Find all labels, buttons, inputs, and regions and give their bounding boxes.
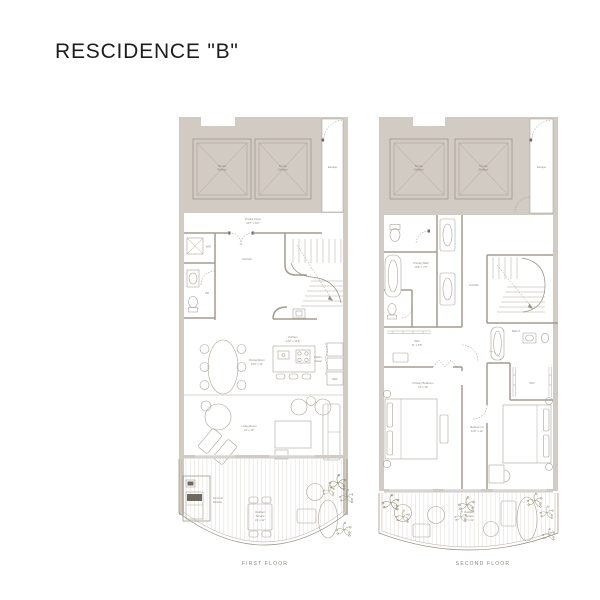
pouf (307, 484, 324, 501)
second-floor-caption: SECOND FLOOR (456, 561, 510, 567)
staircase (291, 239, 343, 318)
wc-room-2 (388, 304, 413, 320)
pantry-cabinets: Pantry Closet REF (314, 343, 343, 385)
svg-text:Living Room: Living Room (242, 424, 258, 428)
bench (440, 415, 448, 443)
svg-text:11'6" x 21': 11'6" x 21' (251, 362, 264, 366)
svg-text:Closet: Closet (314, 359, 322, 363)
living-room: Living Room 21' x 15' (184, 395, 343, 465)
floorplan-page: RESCIDENCE "B" Private Elevator (0, 0, 600, 600)
lounge-chair (297, 509, 316, 523)
svg-text:Escape: Escape (537, 165, 546, 169)
svg-text:Primary Bedroom: Primary Bedroom (413, 381, 435, 385)
svg-text:21' x 12': 21' x 12' (255, 518, 265, 522)
floorplan-first-floor: Private Elevator Private Elevator Escape… (177, 105, 353, 570)
svg-text:Private Foyer: Private Foyer (245, 217, 261, 221)
svg-text:Kitchen: Kitchen (289, 335, 298, 339)
svg-text:Elevator: Elevator (479, 168, 489, 172)
svg-text:Terrace: Terrace (465, 514, 474, 518)
svg-text:Kitchen: Kitchen (213, 500, 222, 504)
svg-text:Elevator: Elevator (414, 168, 424, 172)
svg-text:Pantry: Pantry (314, 355, 322, 359)
elevator-label: Private (218, 164, 227, 168)
svg-text:WIC: WIC (414, 339, 419, 343)
outdoor-dining: Outdoor Terrace 21' x 12' (248, 497, 272, 537)
svg-text:Private: Private (415, 164, 424, 168)
summer-kitchen: Summer Kitchen (183, 476, 223, 521)
interior-walls (184, 233, 322, 320)
svg-text:14' x 16': 14' x 16' (418, 385, 428, 389)
svg-text:Private: Private (279, 164, 288, 168)
plants (323, 474, 353, 536)
lounger (517, 497, 537, 541)
staircase (493, 257, 545, 312)
terrace: Outdoor Terrace 21' x 12' (379, 493, 558, 565)
svg-text:Terrace: Terrace (256, 514, 265, 518)
powder-label: PR (205, 291, 209, 295)
first-floor-caption: FIRST FLOOR (242, 561, 288, 567)
private-foyer: Private Foyer 20'7" x 6'2" (228, 217, 261, 246)
svg-text:11' x 5'9": 11' x 5'9" (412, 343, 423, 347)
walk-in-closet-2: WIC (513, 367, 552, 397)
svg-text:11'6" x 12': 11'6" x 12' (471, 429, 484, 433)
bath-2: Bath 2 (489, 327, 549, 363)
wc-room (390, 225, 430, 245)
svg-text:Primary Bath: Primary Bath (413, 261, 429, 265)
page-title: RESCIDENCE "B" (55, 40, 239, 64)
dining-table (208, 340, 238, 394)
window-wall (384, 489, 553, 493)
svg-text:Private: Private (479, 164, 488, 168)
bedroom-2: Bedroom 2 11'6" x 12' (470, 398, 552, 484)
vanity (440, 219, 455, 305)
svg-text:13'6" x 7'5": 13'6" x 7'5" (414, 265, 427, 269)
escape-label: Escape (328, 165, 337, 169)
wd-label: W/D (206, 245, 211, 249)
ref-label: REF (332, 377, 338, 381)
floorplan-second-floor: Private Elevator Private Elevator Escape (377, 105, 563, 570)
window-wall (184, 455, 343, 459)
corridor-doors (462, 345, 487, 419)
washer-dryer-closet: W/D (187, 238, 211, 254)
svg-text:Bath 2: Bath 2 (512, 329, 520, 333)
dining-area: Dining Room 11'6" x 21' (200, 340, 266, 394)
terrace: Summer Kitchen Outdoor Terrace 21' x 12' (179, 459, 353, 551)
svg-text:Outdoor: Outdoor (255, 510, 265, 514)
svg-text:Elevator: Elevator (278, 168, 288, 172)
svg-text:Bedroom 2: Bedroom 2 (470, 425, 484, 429)
walk-in-closet-1: WIC 11' x 5'9" (387, 331, 457, 367)
svg-text:Summer: Summer (213, 496, 223, 500)
lounge-chair (501, 501, 516, 526)
svg-text:21' x 15': 21' x 15' (244, 428, 254, 432)
terrace-chair (428, 507, 445, 524)
svg-text:WIC: WIC (529, 381, 534, 385)
svg-text:14'2" x 12'8": 14'2" x 12'8" (286, 339, 301, 343)
rug (275, 421, 311, 448)
svg-text:20'7" x 6'2": 20'7" x 6'2" (246, 221, 259, 225)
lounger (319, 500, 338, 538)
corridor-label: Corridor (242, 257, 252, 261)
desk (489, 465, 504, 483)
powder-room: PR (187, 270, 215, 312)
svg-text:Dining Room: Dining Room (249, 358, 265, 362)
primary-bedroom: Primary Bedroom 14' x 16' (383, 381, 448, 468)
svg-text:Elevator: Elevator (217, 168, 227, 172)
kitchen: Kitchen 14'2" x 12'8" (273, 335, 315, 379)
corridor-label: Corridor (469, 283, 479, 287)
